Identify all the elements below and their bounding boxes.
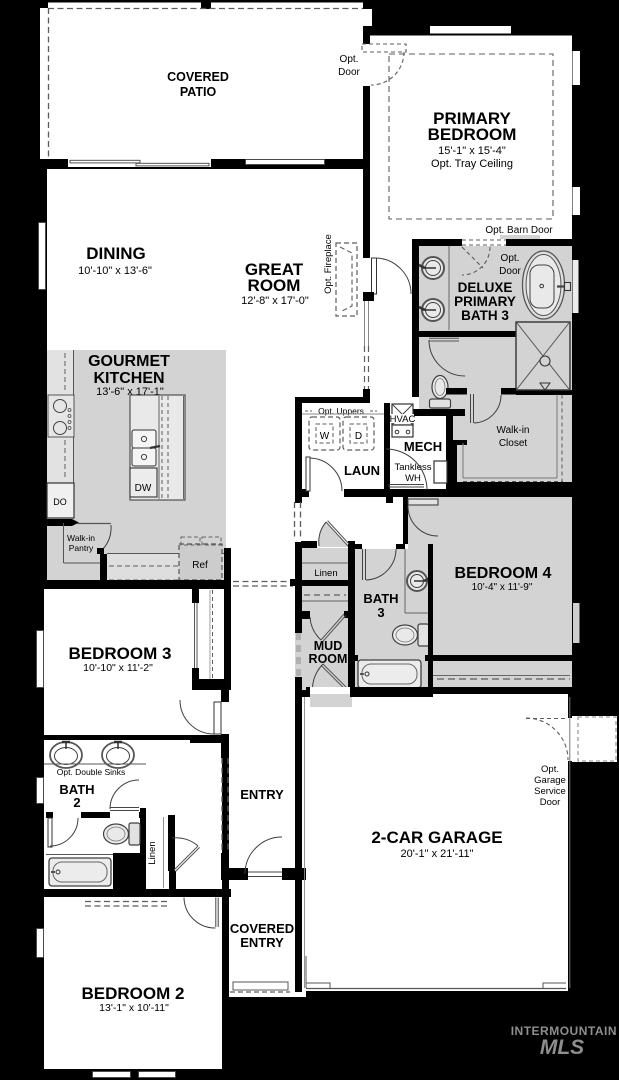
svg-text:Linen: Linen xyxy=(314,568,337,579)
svg-text:MLS: MLS xyxy=(540,1036,584,1059)
svg-text:DINING: DINING xyxy=(86,244,146,263)
svg-text:Closet: Closet xyxy=(499,438,528,449)
svg-text:Opt.: Opt. xyxy=(501,253,520,264)
svg-text:Opt.: Opt. xyxy=(541,764,559,775)
svg-text:Door: Door xyxy=(338,67,360,78)
svg-text:Opt.: Opt. xyxy=(340,54,359,65)
svg-text:Pantry: Pantry xyxy=(69,543,94,553)
svg-text:Walk-in: Walk-in xyxy=(67,533,95,543)
svg-text:Garage: Garage xyxy=(534,775,566,786)
svg-text:Opt. Double Sinks: Opt. Double Sinks xyxy=(57,767,126,777)
svg-text:ENTRY: ENTRY xyxy=(240,935,284,950)
svg-text:W: W xyxy=(320,431,330,442)
svg-text:10'-10" x 11'-2": 10'-10" x 11'-2" xyxy=(83,662,153,674)
svg-text:15'-1" x 15'-4": 15'-1" x 15'-4" xyxy=(438,145,506,157)
svg-text:BATH 3: BATH 3 xyxy=(461,308,509,323)
svg-text:3: 3 xyxy=(377,605,384,620)
svg-text:BEDROOM 4: BEDROOM 4 xyxy=(455,565,552,582)
svg-text:2-CAR GARAGE: 2-CAR GARAGE xyxy=(371,828,502,847)
svg-text:BEDROOM 2: BEDROOM 2 xyxy=(82,984,185,1003)
svg-text:12'-8" x 17'-0": 12'-8" x 17'-0" xyxy=(241,295,309,307)
svg-text:KITCHEN: KITCHEN xyxy=(93,370,164,387)
svg-text:Tankless: Tankless xyxy=(395,462,432,473)
svg-text:Door: Door xyxy=(499,266,521,277)
svg-text:D: D xyxy=(355,431,362,442)
svg-text:BEDROOM 3: BEDROOM 3 xyxy=(69,644,172,663)
svg-text:MUD: MUD xyxy=(314,639,342,653)
svg-text:ENTRY: ENTRY xyxy=(240,787,284,802)
svg-text:Opt. Fireplace: Opt. Fireplace xyxy=(323,234,334,294)
svg-text:Ref: Ref xyxy=(192,560,208,571)
svg-text:GOURMET: GOURMET xyxy=(88,353,170,370)
svg-text:BEDROOM: BEDROOM xyxy=(428,125,517,144)
svg-text:COVERED: COVERED xyxy=(167,70,229,84)
svg-text:ROOM: ROOM xyxy=(248,276,301,295)
svg-text:13'-1" x 10'-11": 13'-1" x 10'-11" xyxy=(99,1002,169,1014)
svg-text:DO: DO xyxy=(53,497,67,507)
svg-text:10'-4" x 11'-9": 10'-4" x 11'-9" xyxy=(472,582,533,593)
svg-text:WH: WH xyxy=(405,473,421,484)
svg-text:10'-10" x 13'-6": 10'-10" x 13'-6" xyxy=(78,265,152,277)
svg-text:Linen: Linen xyxy=(147,841,158,864)
svg-text:BATH: BATH xyxy=(363,591,398,606)
svg-text:Opt. Tray Ceiling: Opt. Tray Ceiling xyxy=(431,158,513,170)
svg-text:COVERED: COVERED xyxy=(230,921,294,936)
svg-text:Walk-in: Walk-in xyxy=(497,425,530,436)
svg-text:PRIMARY: PRIMARY xyxy=(454,294,516,309)
svg-text:20'-1" x 21'-11": 20'-1" x 21'-11" xyxy=(401,848,474,860)
svg-text:DW: DW xyxy=(135,483,152,494)
svg-text:DELUXE: DELUXE xyxy=(458,280,513,295)
svg-text:LAUN: LAUN xyxy=(344,463,380,478)
svg-text:Opt. Barn Door: Opt. Barn Door xyxy=(485,225,553,236)
svg-text:ROOM: ROOM xyxy=(309,652,348,666)
svg-text:Opt. Uppers: Opt. Uppers xyxy=(318,406,364,416)
svg-text:2: 2 xyxy=(73,795,80,810)
svg-text:MECH: MECH xyxy=(404,439,442,454)
svg-text:HVAC: HVAC xyxy=(390,414,416,425)
svg-text:PATIO: PATIO xyxy=(180,85,217,99)
svg-text:Door: Door xyxy=(540,797,561,808)
svg-text:Service: Service xyxy=(534,786,566,797)
